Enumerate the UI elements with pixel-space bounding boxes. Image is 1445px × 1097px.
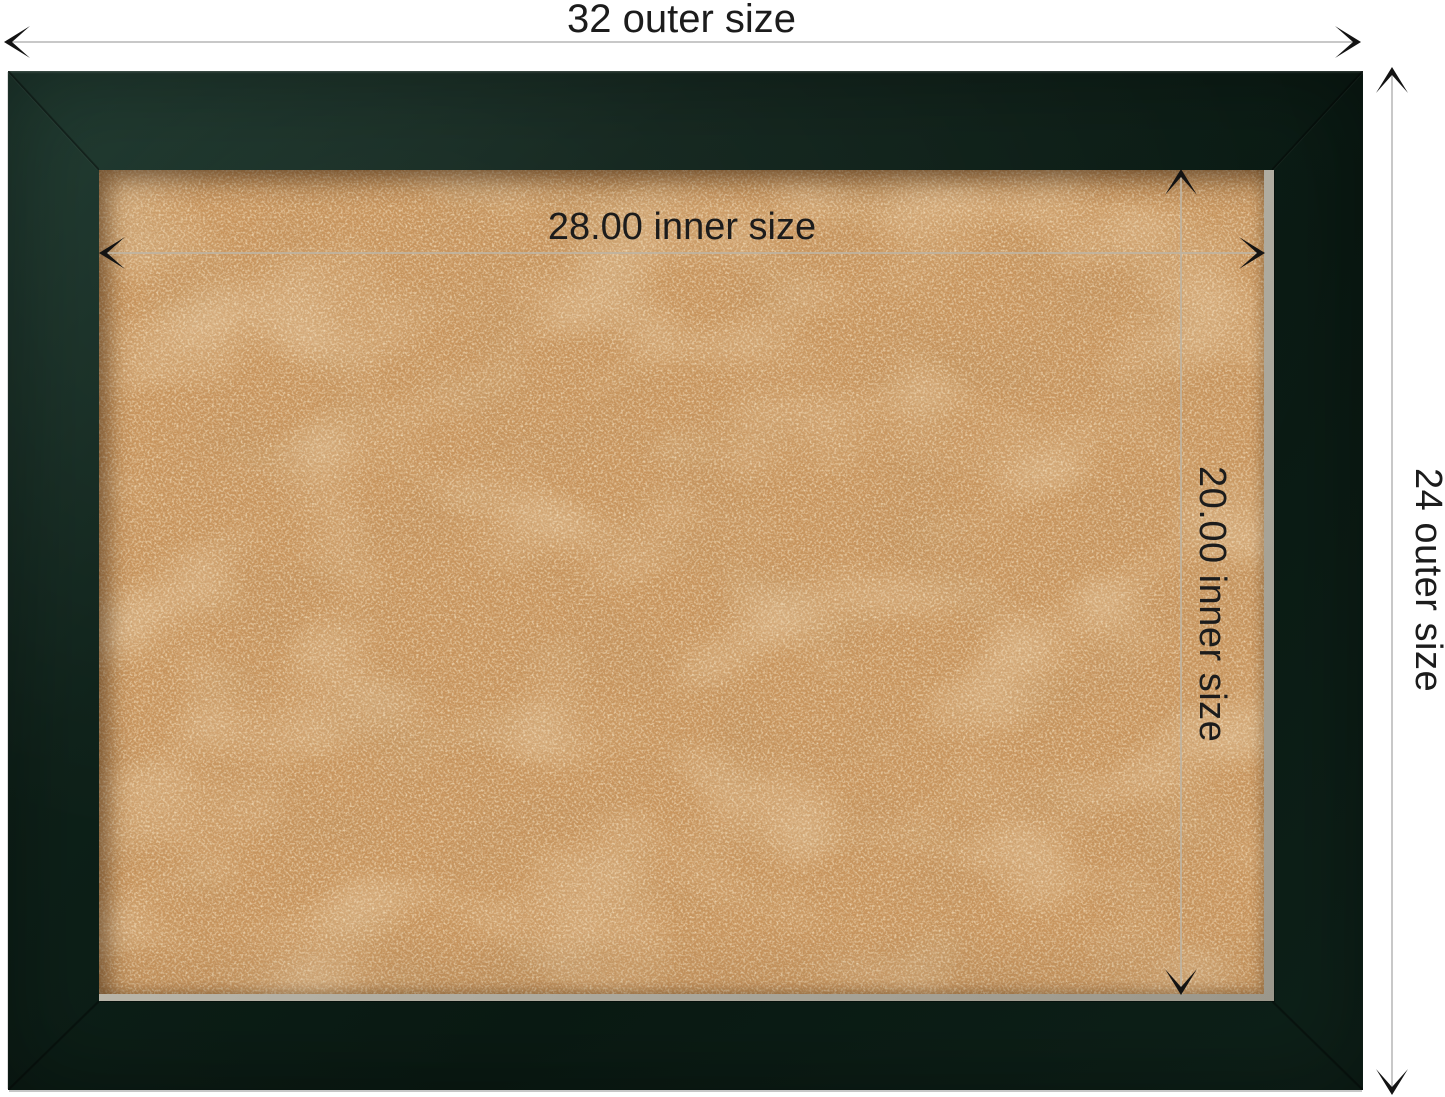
arrow-right-icon	[1335, 26, 1361, 58]
frame-miter-top-right	[1272, 71, 1363, 170]
frame-miter-bottom-left	[8, 1001, 99, 1090]
arrow-left-icon	[99, 237, 125, 269]
product-dimension-diagram: 32 outer size 24 outer size 28.00 inner …	[0, 0, 1445, 1097]
inner-height-label: 20.00 inner size	[1190, 466, 1233, 742]
arrow-left-icon	[4, 26, 30, 58]
outer-width-label: 32 outer size	[0, 0, 1363, 40]
frame-miter-bottom-right	[1272, 1001, 1363, 1090]
inner-width-label: 28.00 inner size	[99, 206, 1265, 248]
arrow-up-icon	[1376, 67, 1408, 93]
cork-texture	[99, 170, 1264, 994]
cork-board-surface	[99, 170, 1264, 994]
outer-width-dimension-line	[10, 41, 1358, 43]
inner-width-dimension-line	[103, 252, 1261, 254]
arrow-down-icon	[1165, 969, 1197, 995]
outer-height-label: 24 outer size	[1406, 468, 1445, 692]
inner-height-dimension-line	[1180, 173, 1182, 993]
arrow-right-icon	[1239, 237, 1265, 269]
outer-height-dimension-line	[1391, 71, 1393, 1091]
arrow-down-icon	[1376, 1069, 1408, 1095]
arrow-up-icon	[1165, 169, 1197, 195]
frame-miter-top-left	[8, 71, 99, 170]
